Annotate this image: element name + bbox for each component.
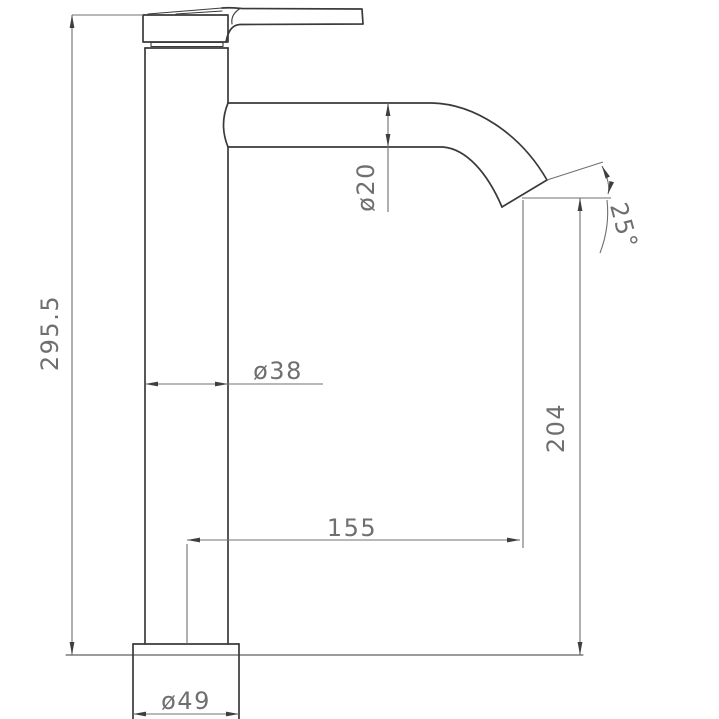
dim-body-diameter: ø38 <box>145 357 323 385</box>
dim-body-diameter-label: ø38 <box>253 357 303 385</box>
dim-base-diameter: ø49 <box>133 687 239 715</box>
dim-spout-diameter-label: ø20 <box>352 162 380 212</box>
technical-drawing-canvas: 295.5 ø20 ø38 155 <box>0 0 719 719</box>
faucet-outline <box>66 8 583 719</box>
dim-spout-angle: 25° <box>547 162 643 253</box>
dim-spout-angle-arc <box>602 166 609 194</box>
spout-outlet-face <box>502 180 547 207</box>
dim-outlet-height-label: 204 <box>542 403 570 453</box>
faucet-dimension-drawing: 295.5 ø20 ø38 155 <box>0 0 719 719</box>
handle-joint-ring <box>151 43 223 47</box>
handle-lever-knuckle <box>232 9 240 25</box>
dim-spout-diameter: ø20 <box>352 103 388 212</box>
dim-overall-height: 295.5 <box>36 15 143 655</box>
handle-lever <box>222 8 363 42</box>
dimensions: 295.5 ø20 ø38 155 <box>36 15 643 715</box>
handle-cap <box>143 15 228 42</box>
dim-spout-reach-label: 155 <box>327 514 377 542</box>
spout-root-fillet <box>224 103 229 147</box>
dim-overall-height-label: 295.5 <box>36 295 64 371</box>
dim-spout-angle-extension <box>547 162 603 180</box>
dim-base-diameter-label: ø49 <box>161 687 211 715</box>
dim-spout-reach: 155 <box>187 200 523 644</box>
dim-outlet-height: 204 <box>522 198 611 655</box>
faucet-handle <box>143 8 363 47</box>
dim-spout-angle-label: 25° <box>604 200 643 253</box>
